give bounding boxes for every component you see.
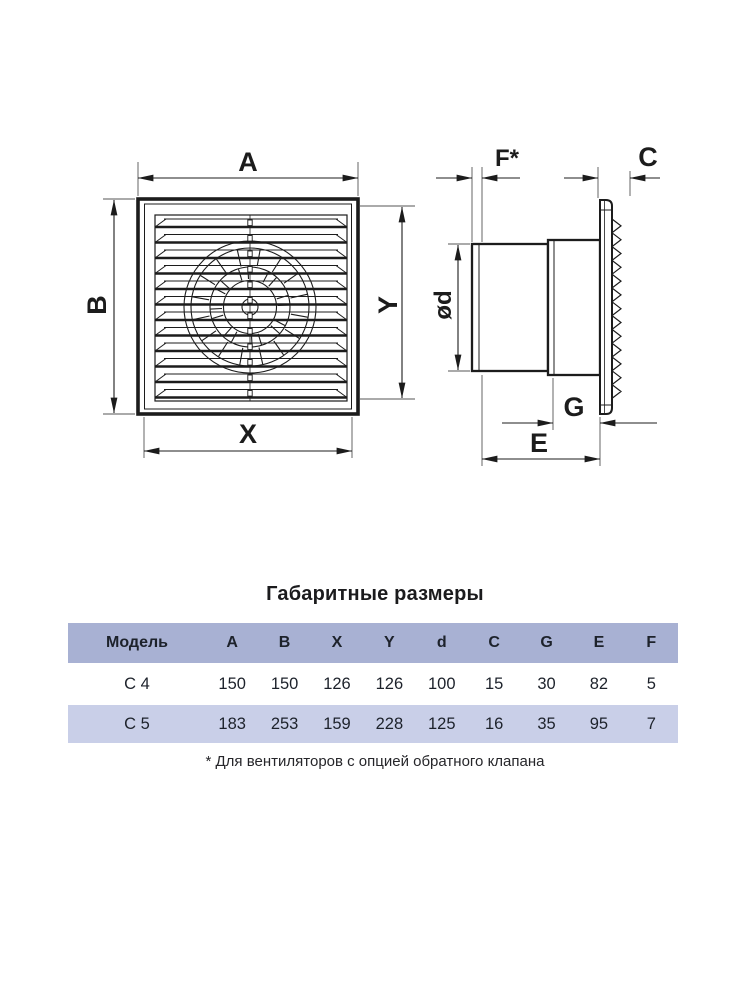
column-header-Y: Y: [363, 634, 415, 652]
side-view: F* C ød G: [430, 142, 660, 466]
column-header-E: E: [573, 634, 625, 652]
dimension-C: C: [564, 142, 660, 198]
page: A B X Y: [0, 0, 750, 1000]
table-cell: 159: [311, 715, 363, 734]
dim-label-Y: Y: [373, 296, 403, 314]
table-cell: 16: [468, 715, 520, 734]
model-cell: С 5: [68, 715, 206, 734]
mounting-collar: [548, 240, 600, 375]
technical-drawing: A B X Y: [0, 0, 750, 560]
footnote: * Для вентиляторов с опцией обратного кл…: [0, 753, 750, 770]
grille-teeth: [612, 219, 621, 398]
table-cell: 183: [206, 715, 258, 734]
table-cell: 30: [520, 675, 572, 694]
table-cell: 5: [625, 675, 677, 694]
table-cell: 95: [573, 715, 625, 734]
column-header-F: F: [625, 634, 677, 652]
table-cell: 7: [625, 715, 677, 734]
table-header-row: Модель A B X Y d C G E F: [68, 623, 678, 663]
column-header-X: X: [311, 634, 363, 652]
dim-label-X: X: [239, 419, 257, 449]
dimension-B: B: [82, 199, 135, 414]
dim-label-B: B: [82, 295, 112, 315]
column-header-G: G: [520, 634, 572, 652]
table-cell: 15: [468, 675, 520, 694]
dimension-A: A: [138, 147, 358, 196]
front-panel: [600, 200, 612, 414]
table-cell: 150: [206, 675, 258, 694]
dimension-F: F*: [436, 145, 520, 242]
table-cell: 253: [258, 715, 310, 734]
table-cell: 150: [258, 675, 310, 694]
table-row: С 4 150 150 126 126 100 15 30 82 5: [68, 663, 678, 705]
model-cell: С 4: [68, 675, 206, 694]
dimension-G: G: [502, 378, 657, 466]
dim-label-A: A: [238, 147, 258, 177]
dim-label-G: G: [563, 392, 584, 422]
table-cell: 35: [520, 715, 572, 734]
dim-label-E: E: [530, 428, 548, 458]
front-view: A B X Y: [82, 147, 415, 458]
table-cell: 125: [416, 715, 468, 734]
table-cell: 228: [363, 715, 415, 734]
dimensions-table: Модель A B X Y d C G E F С 4 150 150 126…: [68, 623, 678, 743]
dim-label-F: F*: [495, 145, 520, 172]
table-row: С 5 183 253 159 228 125 16 35 95 7: [68, 705, 678, 743]
duct-tube: [472, 244, 548, 371]
table-title: Габаритные размеры: [0, 583, 750, 606]
dimension-X: X: [144, 417, 352, 458]
column-header-B: B: [258, 634, 310, 652]
column-header-C: C: [468, 634, 520, 652]
dimension-d: ød: [430, 244, 470, 371]
dim-label-d: ød: [430, 290, 457, 319]
table-cell: 100: [416, 675, 468, 694]
column-header-model: Модель: [68, 634, 206, 652]
dim-label-C: C: [638, 142, 658, 172]
column-header-d: d: [416, 634, 468, 652]
column-header-A: A: [206, 634, 258, 652]
table-cell: 82: [573, 675, 625, 694]
table-cell: 126: [311, 675, 363, 694]
table-cell: 126: [363, 675, 415, 694]
dimension-Y: Y: [360, 206, 415, 399]
